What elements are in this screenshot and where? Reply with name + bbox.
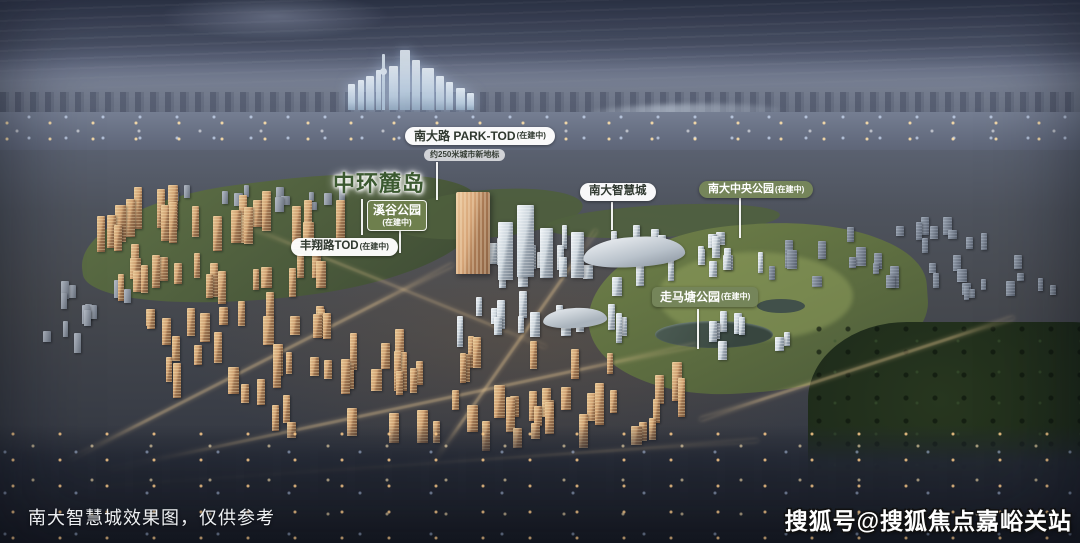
status-suffix: (在建中) [360,243,389,251]
building [724,248,731,270]
building [262,191,271,230]
building [134,187,142,230]
building [324,360,332,379]
building [608,304,615,330]
badge-xigu-park: 溪谷公园 (在建中) [367,200,427,231]
building [775,337,784,351]
watermark-source: 搜狐号@搜狐焦点嘉峪关站 [785,502,1072,536]
building [310,357,319,377]
building [61,293,68,309]
building [1017,273,1024,281]
building [957,269,967,282]
building [97,216,105,252]
label-text: 南大中央公园 [708,184,774,195]
watermark-disclaimer: 南大智慧城效果图，仅供参考 [28,504,275,530]
building [43,331,51,343]
building [678,378,685,417]
office-tower [498,222,513,280]
leader-xigu-park [399,231,401,253]
building [184,185,190,198]
building [709,261,718,277]
building [126,199,136,238]
building [739,317,745,335]
building [1050,285,1057,295]
building [124,289,131,302]
building [610,390,617,413]
building [323,313,331,339]
building [241,384,250,403]
building [896,226,904,236]
building [214,332,223,364]
building [313,314,322,339]
building [886,275,895,287]
building [847,227,854,242]
building [169,202,178,243]
status-suffix: (在建中) [373,218,421,227]
building [222,191,228,204]
building [174,263,182,284]
label-zoumatang-park: 走马塘公园(在建中) [652,287,758,307]
building [933,273,938,288]
building [162,318,171,346]
building [966,237,973,249]
building [275,197,284,212]
building [571,349,579,379]
building [84,310,91,326]
building [1038,278,1043,291]
building [916,222,922,240]
building [118,274,124,301]
status-suffix: (在建中) [517,132,546,140]
building [595,383,605,425]
label-text: 南大路 PARK-TOD [414,130,516,142]
building [460,353,467,384]
building [709,321,717,342]
landmark-tower-250m [456,192,490,274]
building [324,193,332,205]
building [219,307,228,325]
building [206,274,213,298]
building [152,255,160,288]
building [712,236,720,258]
building [290,316,300,335]
building [283,395,290,423]
building [494,385,506,418]
building [244,207,253,244]
building [261,267,272,289]
building [720,311,727,332]
label-park-tod-subtitle: 约250米城市新地标 [424,149,505,161]
building [494,317,502,335]
building [929,263,936,273]
headline-zhonghuan-ludao: 中环麓岛 [333,166,425,198]
building [873,263,879,274]
building [263,316,273,345]
office-tower [571,232,584,278]
building [769,266,775,280]
status-suffix: (在建中) [721,293,750,301]
building [812,276,822,288]
label-nanda-central-park: 南大中央公园(在建中) [699,181,813,198]
building [286,352,292,374]
building [530,341,537,369]
office-tower [540,228,553,278]
building [218,271,226,304]
building [200,313,210,343]
building [784,332,790,346]
building [147,309,155,329]
building [1006,281,1015,296]
building [194,253,201,278]
building [173,363,181,398]
building [297,254,304,278]
building [336,200,345,239]
building [141,265,148,293]
badge-text: 溪谷公园 [373,204,421,218]
building [1014,255,1023,269]
leader-nanda-smart-city [611,202,613,230]
building [114,225,122,252]
label-nanda-smart-city: 南大智慧城 [580,183,656,201]
building [452,390,459,410]
building [612,277,622,296]
building [371,369,382,391]
building [231,210,242,243]
building [473,337,482,369]
label-nandalu-park-tod: 南大路 PARK-TOD(在建中) [405,127,555,145]
building [559,257,567,277]
building [616,313,623,342]
building [213,216,223,251]
building [266,292,275,318]
building [341,359,350,395]
building [192,206,199,238]
building [289,268,296,297]
building [238,301,244,326]
building [530,312,540,336]
building [930,226,938,239]
building [718,341,727,360]
building [172,336,181,362]
building [981,279,987,290]
building [228,367,239,395]
label-fengxiang-tod: 丰翔路TOD(在建中) [291,238,398,256]
leader-park-tod [436,162,438,200]
building [758,252,763,273]
building [253,269,259,290]
leader-central-park [739,198,741,238]
building [166,357,173,382]
leader-zoumatang-park [697,309,699,349]
building [194,345,202,365]
building [74,333,80,353]
office-tower [517,205,534,277]
building [583,265,593,279]
label-text: 南大智慧城 [589,186,647,198]
leader-zhonghuan [361,199,363,235]
building [981,233,988,250]
aerial-rendering-nanda-smart-city: 南大路 PARK-TOD(在建中) 约250米城市新地标 中环麓岛 溪谷公园 (… [0,0,1080,543]
building [519,291,528,318]
label-text: 丰翔路TOD [300,241,359,253]
building [476,297,483,316]
building [257,379,265,405]
building [856,247,866,266]
building [416,361,424,386]
building [818,241,826,260]
building [698,249,705,264]
building [63,321,68,337]
building [921,217,929,235]
status-suffix: (在建中) [775,186,804,194]
building [787,250,797,269]
label-text: 走马塘公园 [660,291,720,303]
building [457,316,463,347]
building [561,387,572,410]
building [948,230,957,240]
building [273,350,281,388]
building [849,257,856,269]
building [518,316,525,333]
building [381,343,390,369]
building [69,285,76,298]
building [316,261,326,288]
building [964,286,970,299]
building [187,308,195,336]
building [922,238,928,254]
building [969,289,975,299]
building [396,371,403,395]
building [410,368,417,393]
building [607,353,613,374]
